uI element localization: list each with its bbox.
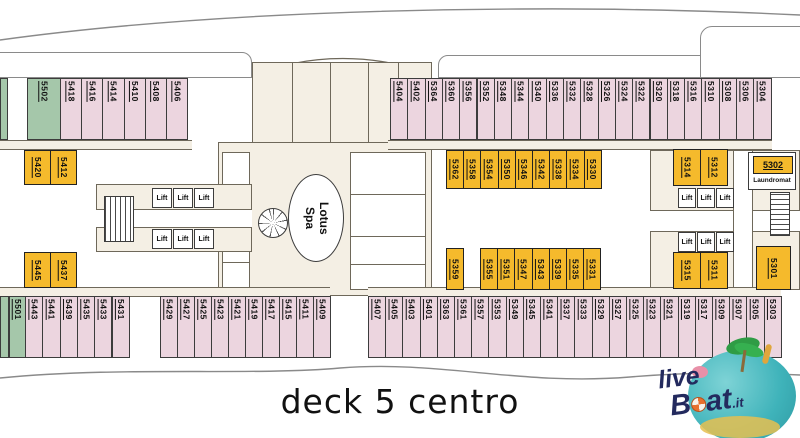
cabin-number: 5328 [585, 81, 594, 102]
cabin-number: 5406 [173, 81, 182, 102]
cabin-number: 5420 [33, 157, 42, 178]
cabin-5311: 5311 [700, 252, 728, 289]
cabin-5445: 5445 [24, 252, 51, 288]
cabin-number: 5307 [734, 299, 743, 320]
cabin-5333: 5333 [574, 296, 592, 358]
room-divider [350, 194, 426, 195]
cabin-number: 5330 [588, 159, 597, 180]
cabin-number: 5320 [654, 81, 663, 102]
partial-cabin-edge [0, 296, 9, 358]
cabin-number: 5325 [631, 299, 640, 320]
cabin-5310: 5310 [701, 78, 719, 140]
cabin-number: 5323 [648, 299, 657, 320]
cabin-number: 5358 [468, 159, 477, 180]
cabin-number: 5417 [267, 299, 276, 320]
cabin-number: 5362 [451, 159, 460, 180]
cabin-number: 5349 [510, 299, 519, 320]
cabin-5328: 5328 [580, 78, 598, 140]
cabin-5407: 5407 [368, 296, 386, 358]
cabin-number: 5353 [493, 299, 502, 320]
room-divider [330, 63, 331, 142]
cabin-number: 5324 [620, 81, 629, 102]
cabin-number: 5408 [152, 81, 161, 102]
cabin-number: 5435 [82, 299, 91, 320]
cabin-5411: 5411 [296, 296, 314, 358]
cabin-number: 5359 [451, 259, 460, 280]
cabin-5338: 5338 [549, 150, 567, 189]
cabin-5427: 5427 [177, 296, 195, 358]
cabin-number: 5414 [109, 81, 118, 102]
cabin-5340: 5340 [528, 78, 546, 140]
cabin-5347: 5347 [514, 248, 532, 290]
cabin-5314: 5314 [673, 149, 701, 186]
cabin-5403: 5403 [402, 296, 420, 358]
cabin-5418: 5418 [60, 78, 82, 140]
cabin-number: 5405 [390, 299, 399, 320]
cabin-number: 5319 [682, 299, 691, 320]
cabin-5404: 5404 [390, 78, 408, 140]
cabin-5416: 5416 [81, 78, 103, 140]
cabin-5354: 5354 [480, 150, 498, 189]
cabin-5361: 5361 [454, 296, 472, 358]
cabin-5359: 5359 [446, 248, 464, 290]
cabin-number: 5427 [182, 299, 191, 320]
lift-left-lower-2: Lift [173, 229, 193, 249]
cabin-number: 5336 [551, 81, 560, 102]
lift-left-upper-1: Lift [152, 188, 172, 208]
cabin-number: 5301 [769, 258, 778, 279]
room-divider [368, 63, 369, 142]
cabin-5329: 5329 [592, 296, 610, 358]
cabin-5415: 5415 [279, 296, 297, 358]
cabin-5439: 5439 [60, 296, 78, 358]
watermark-domain: .it [731, 395, 744, 411]
cabin-5318: 5318 [667, 78, 685, 140]
cabin-number: 5341 [545, 299, 554, 320]
cabin-number: 5326 [602, 81, 611, 102]
cabin-number: 5329 [596, 299, 605, 320]
cabin-number: 5303 [768, 299, 777, 320]
forward-structure-band-left [0, 52, 252, 78]
cabin-5341: 5341 [540, 296, 558, 358]
cabin-number: 5445 [33, 260, 42, 281]
lift-left-upper-3: Lift [194, 188, 214, 208]
cabin-5417: 5417 [262, 296, 280, 358]
stairs-icon-left [104, 196, 134, 242]
cabin-number: 5345 [528, 299, 537, 320]
room-divider [350, 264, 426, 265]
cabin-5326: 5326 [598, 78, 616, 140]
cabin-5342: 5342 [532, 150, 550, 189]
cabin-5331: 5331 [583, 248, 601, 290]
cabin-5346: 5346 [515, 150, 533, 189]
cabin-5302: 5302 [753, 156, 793, 174]
cabin-number: 5338 [554, 159, 563, 180]
cabin-number: 5321 [665, 299, 674, 320]
cabin-5502: 5502 [27, 78, 61, 140]
cabin-number: 5401 [424, 299, 433, 320]
lift-right-upper-1: Lift [678, 188, 696, 208]
cabin-number: 5327 [614, 299, 623, 320]
deck-plan: Lotus Spa Laundromat 5502541854165414541… [0, 0, 800, 438]
forward-structure-step-right [700, 26, 800, 78]
room-divider [350, 236, 426, 237]
cabin-5315: 5315 [673, 252, 701, 289]
stairs-icon-right [770, 192, 790, 236]
cabin-number: 5354 [485, 159, 494, 180]
cabin-number: 5418 [67, 81, 76, 102]
cabin-number: 5403 [407, 299, 416, 320]
cabin-number: 5409 [318, 299, 327, 320]
cabin-number: 5501 [13, 299, 22, 320]
cabin-number: 5302 [763, 161, 783, 170]
cabin-5414: 5414 [102, 78, 124, 140]
cabin-5364: 5364 [425, 78, 443, 140]
cabin-5431: 5431 [112, 296, 130, 358]
cabin-5419: 5419 [245, 296, 263, 358]
forward-structure-band-right [438, 55, 704, 78]
cabin-number: 5404 [395, 81, 404, 102]
cabin-number: 5322 [637, 81, 646, 102]
cabin-5349: 5349 [506, 296, 524, 358]
cabin-5304: 5304 [753, 78, 771, 140]
cabin-5405: 5405 [385, 296, 403, 358]
cabin-number: 5342 [537, 159, 546, 180]
cabin-5362: 5362 [446, 150, 464, 189]
cabin-5352: 5352 [477, 78, 495, 140]
cabin-5350: 5350 [498, 150, 516, 189]
cabin-number: 5443 [30, 299, 39, 320]
cabin-number: 5304 [758, 81, 767, 102]
cabin-number: 5425 [199, 299, 208, 320]
cabin-number: 5416 [88, 81, 97, 102]
cabin-5401: 5401 [420, 296, 438, 358]
cabin-5420: 5420 [24, 150, 51, 185]
cabin-number: 5305 [751, 299, 760, 320]
lift-left-lower-1: Lift [152, 229, 172, 249]
lotus-spa-label: Lotus Spa [302, 202, 330, 235]
cabin-number: 5337 [562, 299, 571, 320]
cabin-5409: 5409 [313, 296, 331, 358]
cabin-5358: 5358 [463, 150, 481, 189]
cabin-5360: 5360 [442, 78, 460, 140]
cabin-number: 5502 [40, 81, 49, 102]
cabin-number: 5355 [485, 259, 494, 280]
cabin-number: 5419 [250, 299, 259, 320]
cabin-number: 5308 [724, 81, 733, 102]
cabin-5316: 5316 [684, 78, 702, 140]
cabin-5402: 5402 [407, 78, 425, 140]
cabin-5421: 5421 [228, 296, 246, 358]
cabin-5301: 5301 [756, 246, 791, 290]
sand-icon [700, 416, 780, 438]
cabin-number: 5421 [233, 299, 242, 320]
cabin-number: 5415 [284, 299, 293, 320]
cabin-number: 5439 [64, 299, 73, 320]
cabin-number: 5364 [429, 81, 438, 102]
lift-right-lower-1: Lift [678, 232, 696, 252]
cabin-5443: 5443 [25, 296, 43, 358]
cabin-number: 5348 [499, 81, 508, 102]
lift-right-lower-2: Lift [697, 232, 715, 252]
cabin-number: 5423 [216, 299, 225, 320]
cabin-5312: 5312 [700, 149, 728, 186]
cabin-5406: 5406 [166, 78, 188, 140]
cabin-number: 5437 [59, 260, 68, 281]
cabin-number: 5335 [571, 259, 580, 280]
cabin-5408: 5408 [145, 78, 167, 140]
room-divider [292, 63, 293, 142]
cabin-5337: 5337 [557, 296, 575, 358]
cabin-5429: 5429 [160, 296, 178, 358]
watermark-boat-at: at [704, 383, 734, 418]
cabin-5357: 5357 [471, 296, 489, 358]
cabin-5320: 5320 [650, 78, 668, 140]
cabin-5425: 5425 [194, 296, 212, 358]
cabin-number: 5344 [516, 81, 525, 102]
cabin-5437: 5437 [50, 252, 77, 288]
cabin-number: 5332 [568, 81, 577, 102]
cabin-5501: 5501 [9, 296, 26, 358]
lift-left-upper-2: Lift [173, 188, 193, 208]
lotus-spa-area: Lotus Spa [288, 174, 344, 262]
cabin-number: 5357 [476, 299, 485, 320]
cabin-number: 5340 [533, 81, 542, 102]
cabin-5332: 5332 [563, 78, 581, 140]
cabin-5355: 5355 [480, 248, 498, 290]
cabin-number: 5316 [689, 81, 698, 102]
spiral-stairs-icon [258, 208, 288, 238]
cabin-number: 5351 [502, 259, 511, 280]
cabin-5351: 5351 [497, 248, 515, 290]
cabin-5412: 5412 [50, 150, 77, 185]
cabin-5353: 5353 [488, 296, 506, 358]
partial-cabin-edge [0, 78, 8, 140]
corridor-strip [0, 140, 192, 150]
lift-right-upper-2: Lift [697, 188, 715, 208]
cabin-5324: 5324 [615, 78, 633, 140]
cabin-number: 5356 [464, 81, 473, 102]
cabin-number: 5361 [459, 299, 468, 320]
cabin-5423: 5423 [211, 296, 229, 358]
cabin-number: 5311 [710, 260, 719, 280]
cabin-5322: 5322 [632, 78, 650, 140]
cabin-5339: 5339 [549, 248, 567, 290]
watermark-boat-b: B [668, 388, 693, 422]
cabin-number: 5306 [741, 81, 750, 102]
cabin-number: 5412 [59, 157, 68, 178]
cabin-number: 5331 [588, 259, 597, 280]
cabin-number: 5350 [502, 159, 511, 180]
cabin-number: 5315 [683, 260, 692, 281]
room-divider [222, 262, 250, 263]
cabin-5348: 5348 [494, 78, 512, 140]
laundromat-label: Laundromat [746, 177, 798, 184]
cabin-5308: 5308 [719, 78, 737, 140]
cabin-number: 5429 [165, 299, 174, 320]
cabin-5343: 5343 [532, 248, 550, 290]
cabin-number: 5363 [442, 299, 451, 320]
cabin-number: 5318 [672, 81, 681, 102]
lift-left-lower-3: Lift [194, 229, 214, 249]
cabin-5435: 5435 [77, 296, 95, 358]
lift-right-upper-3: Lift [716, 188, 734, 208]
cabin-number: 5407 [373, 299, 382, 320]
cabin-5336: 5336 [546, 78, 564, 140]
cabin-number: 5333 [579, 299, 588, 320]
cabin-number: 5411 [301, 299, 310, 319]
cabin-number: 5346 [520, 159, 529, 180]
cabin-number: 5317 [700, 299, 709, 320]
cabin-number: 5360 [447, 81, 456, 102]
cabin-number: 5433 [99, 299, 108, 320]
cabin-5441: 5441 [42, 296, 60, 358]
cabin-number: 5334 [571, 159, 580, 180]
cabin-5334: 5334 [566, 150, 584, 189]
cabin-number: 5343 [536, 259, 545, 280]
cabin-number: 5314 [683, 157, 692, 178]
cabin-number: 5310 [706, 81, 715, 102]
cabin-number: 5410 [130, 81, 139, 102]
cabin-5363: 5363 [437, 296, 455, 358]
cabin-5335: 5335 [566, 248, 584, 290]
liveboat-watermark: live Bat.it [630, 338, 800, 438]
cabin-number: 5339 [554, 259, 563, 280]
cabin-number: 5352 [481, 81, 490, 102]
cabin-5356: 5356 [459, 78, 477, 140]
spa-room-block [350, 152, 426, 290]
cabin-5433: 5433 [94, 296, 112, 358]
cabin-5345: 5345 [523, 296, 541, 358]
cabin-number: 5441 [47, 299, 56, 320]
cabin-number: 5309 [717, 299, 726, 320]
cabin-number: 5312 [710, 157, 719, 178]
cabin-5410: 5410 [124, 78, 146, 140]
cabin-number: 5402 [412, 81, 421, 102]
cabin-5330: 5330 [584, 150, 602, 189]
cabin-number: 5431 [116, 299, 125, 320]
cabin-5344: 5344 [511, 78, 529, 140]
cabin-5327: 5327 [609, 296, 627, 358]
cabin-number: 5347 [519, 259, 528, 280]
lift-right-lower-3: Lift [716, 232, 734, 252]
cabin-5306: 5306 [736, 78, 754, 140]
